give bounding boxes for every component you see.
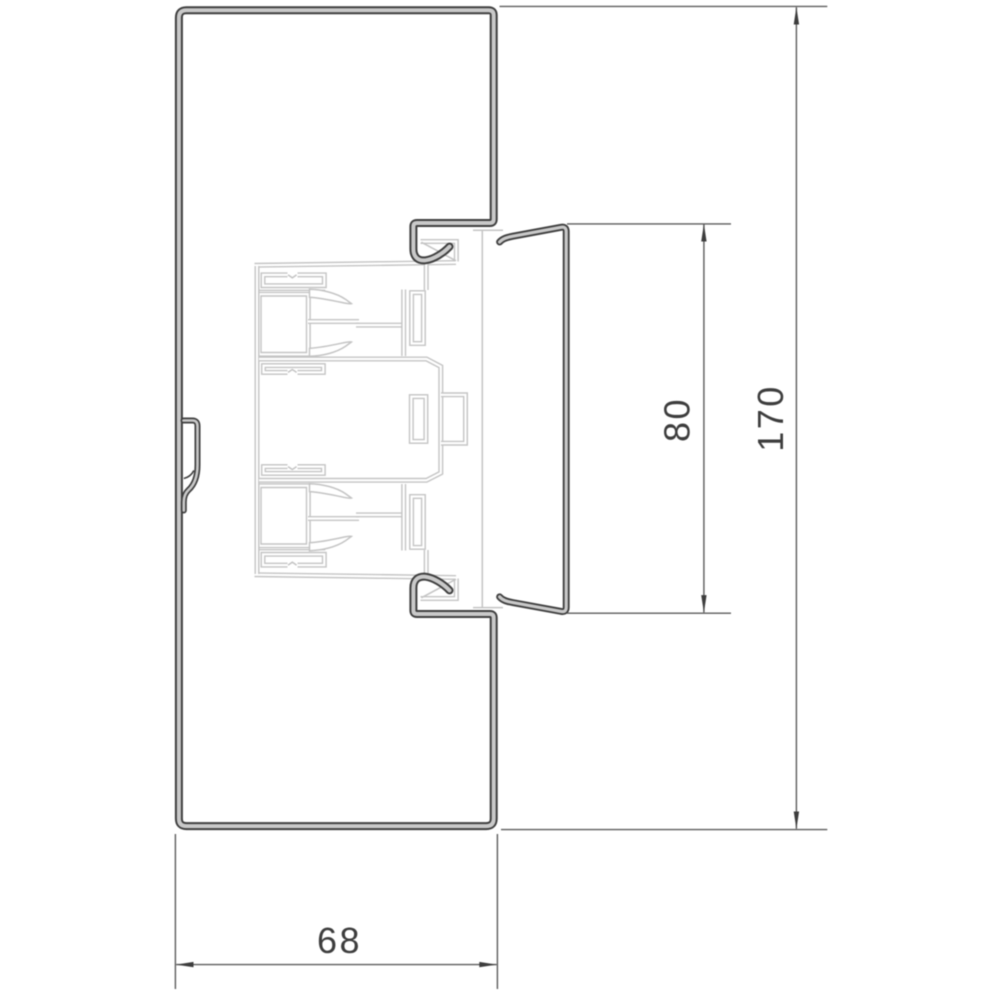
- svg-text:80: 80: [657, 397, 698, 442]
- svg-text:68: 68: [317, 920, 362, 961]
- svg-text:170: 170: [750, 384, 791, 452]
